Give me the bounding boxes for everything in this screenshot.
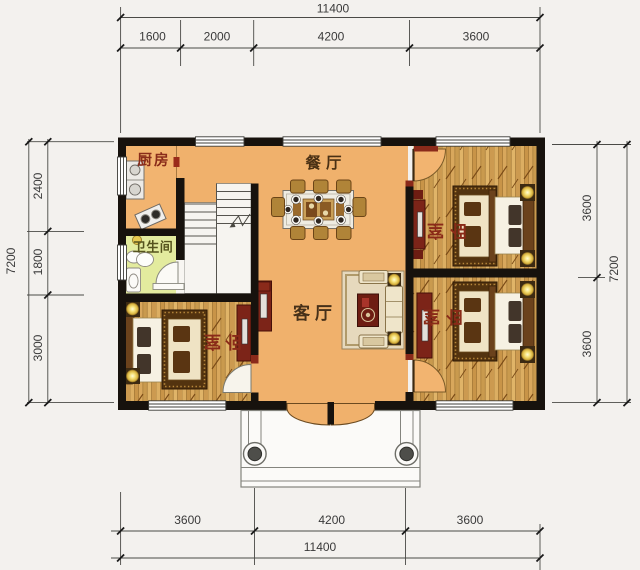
svg-text:厨房: 厨房 [138, 151, 171, 169]
svg-text:7200: 7200 [607, 255, 621, 282]
svg-text:1800: 1800 [31, 248, 45, 275]
svg-text:3600: 3600 [580, 330, 594, 357]
svg-text:4200: 4200 [318, 30, 345, 44]
svg-text:4200: 4200 [318, 513, 345, 527]
svg-text:11400: 11400 [317, 2, 350, 16]
svg-text:卧室: 卧室 [421, 221, 467, 241]
svg-text:11400: 11400 [304, 540, 337, 554]
svg-text:3000: 3000 [31, 334, 45, 361]
svg-text:3600: 3600 [457, 513, 484, 527]
svg-text:卧室: 卧室 [200, 332, 242, 352]
svg-text:卫生间: 卫生间 [133, 240, 174, 255]
svg-text:2000: 2000 [204, 30, 231, 44]
svg-text:1600: 1600 [139, 30, 166, 44]
svg-text:3600: 3600 [463, 30, 490, 44]
svg-text:餐厅: 餐厅 [304, 153, 346, 172]
svg-text:3600: 3600 [174, 513, 201, 527]
svg-text:3600: 3600 [580, 194, 594, 221]
svg-text:卧室: 卧室 [417, 307, 463, 327]
svg-text:客厅: 客厅 [292, 303, 337, 323]
svg-text:2400: 2400 [31, 172, 45, 199]
svg-text:7200: 7200 [4, 247, 18, 274]
